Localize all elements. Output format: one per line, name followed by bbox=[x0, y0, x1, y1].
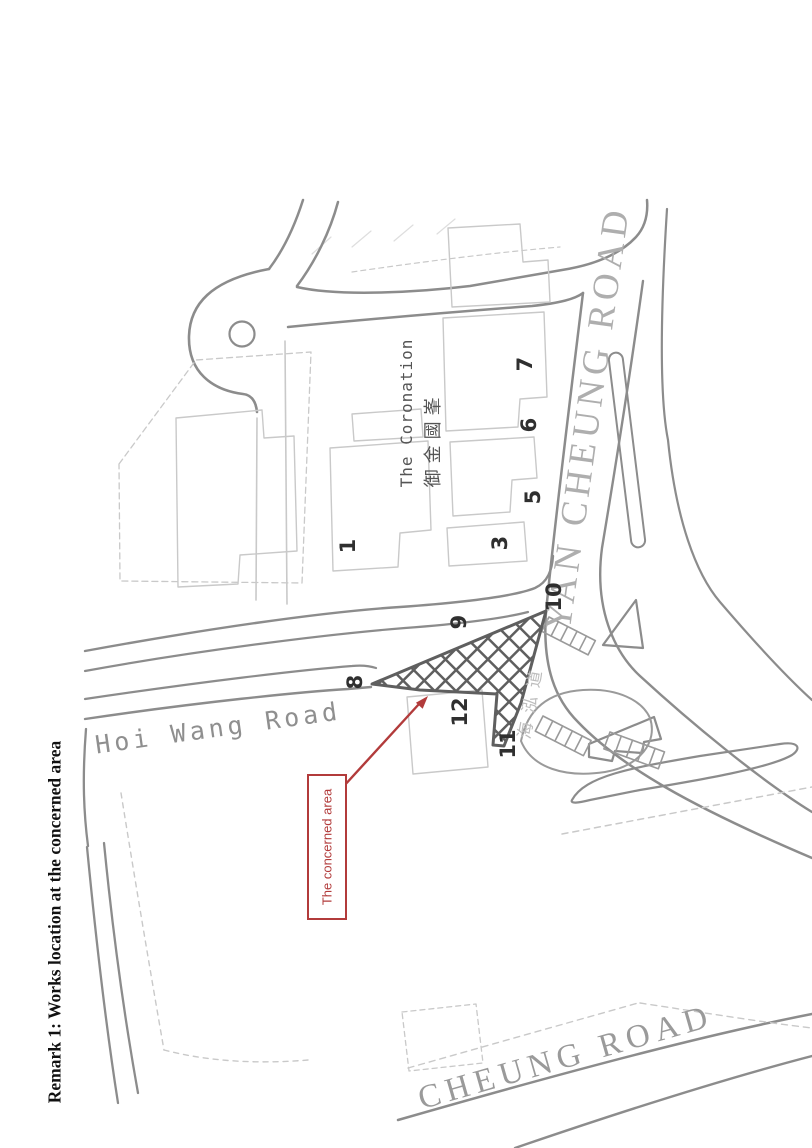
concerned-area-label: The concerned area bbox=[320, 789, 335, 905]
map-marker-5: 5 bbox=[521, 490, 545, 505]
bottom-left-road bbox=[84, 729, 308, 1103]
map-marker-10: 10 bbox=[542, 582, 566, 611]
left-building-plot bbox=[119, 352, 311, 587]
map-marker-11: 11 bbox=[496, 729, 520, 758]
cul-de-sac bbox=[189, 200, 338, 412]
map-marker-12: 12 bbox=[448, 697, 472, 726]
map-marker-9: 9 bbox=[447, 615, 471, 630]
junction-islands bbox=[521, 600, 812, 834]
page: Remark 1: Works location at the concerne… bbox=[0, 0, 812, 1148]
coronation-label: The Coronation 御金國峯 bbox=[397, 339, 445, 488]
map-marker-7: 7 bbox=[513, 357, 537, 372]
map-marker-3: 3 bbox=[488, 536, 512, 551]
map-marker-6: 6 bbox=[517, 418, 541, 433]
site-plan-map: The Coronation 御金國峯 Hoi Wang Road YAN CH… bbox=[0, 0, 812, 1148]
coronation-name-en: The Coronation bbox=[397, 339, 416, 488]
side-street bbox=[256, 341, 287, 604]
crosswalk-icons bbox=[535, 617, 664, 769]
map-marker-8: 8 bbox=[343, 675, 367, 690]
coronation-name-zh: 御金國峯 bbox=[419, 339, 445, 488]
map-drawing bbox=[0, 0, 812, 1148]
slope-texture bbox=[312, 219, 560, 272]
map-marker-1: 1 bbox=[336, 539, 360, 554]
concerned-area-box: The concerned area bbox=[307, 774, 347, 920]
